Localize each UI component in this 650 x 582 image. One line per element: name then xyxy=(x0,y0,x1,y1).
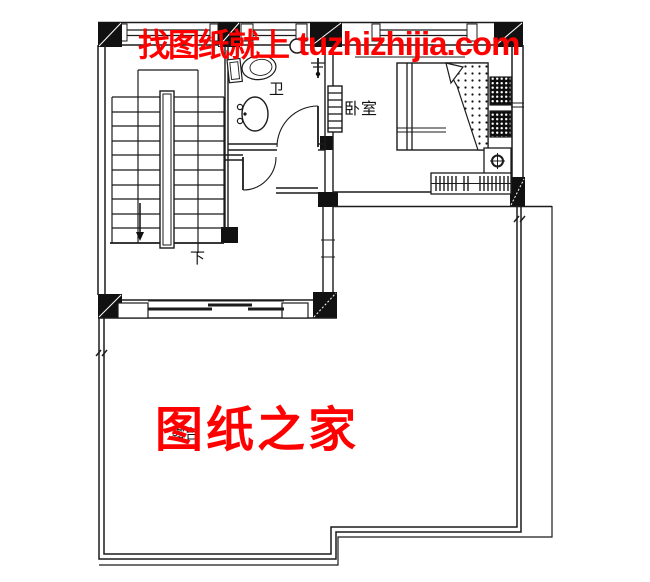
floorplan-drawing xyxy=(0,0,650,582)
stair-down-arrow xyxy=(136,203,144,241)
column xyxy=(510,177,525,207)
terrace-parapet-mid xyxy=(99,206,521,559)
watermark-top-chinese: 找图纸就上 xyxy=(138,27,288,63)
floorplan-page: 卫 卧室 下 露台 找图纸就上tuzhizhijia.com 图纸之家 xyxy=(0,0,650,582)
break-mark xyxy=(96,350,107,356)
bedside-cabinet xyxy=(490,77,511,105)
bathroom-door-arc xyxy=(277,106,318,147)
bottom-wall-sliding-door xyxy=(98,300,337,318)
wall-block xyxy=(221,227,238,243)
stair-direction-label: 下 xyxy=(190,251,205,266)
break-mark xyxy=(514,216,525,222)
bedside-cabinet xyxy=(490,111,511,137)
bedroom-wall-vent xyxy=(328,86,342,132)
terrace-edge-outer xyxy=(99,206,552,565)
wall-block xyxy=(318,192,338,207)
terrace-parapet-inner xyxy=(104,206,517,554)
column xyxy=(313,292,337,318)
room-label-bathroom: 卫 xyxy=(269,82,284,97)
watermark-top: 找图纸就上tuzhizhijia.com xyxy=(138,27,520,61)
hall-door xyxy=(243,157,276,190)
bedroom xyxy=(328,57,511,194)
column xyxy=(98,22,122,47)
room-label-bedroom: 卧室 xyxy=(344,102,378,118)
watermark-center: 图纸之家 xyxy=(155,407,359,455)
bed xyxy=(397,63,488,150)
wall-block xyxy=(320,136,333,150)
dresser-grille xyxy=(431,173,511,194)
washbasin xyxy=(237,97,268,131)
watermark-top-url: tuzhizhijia.com xyxy=(298,25,520,62)
terrace xyxy=(96,206,552,565)
lamp-table xyxy=(484,148,511,174)
staircase xyxy=(110,70,224,253)
